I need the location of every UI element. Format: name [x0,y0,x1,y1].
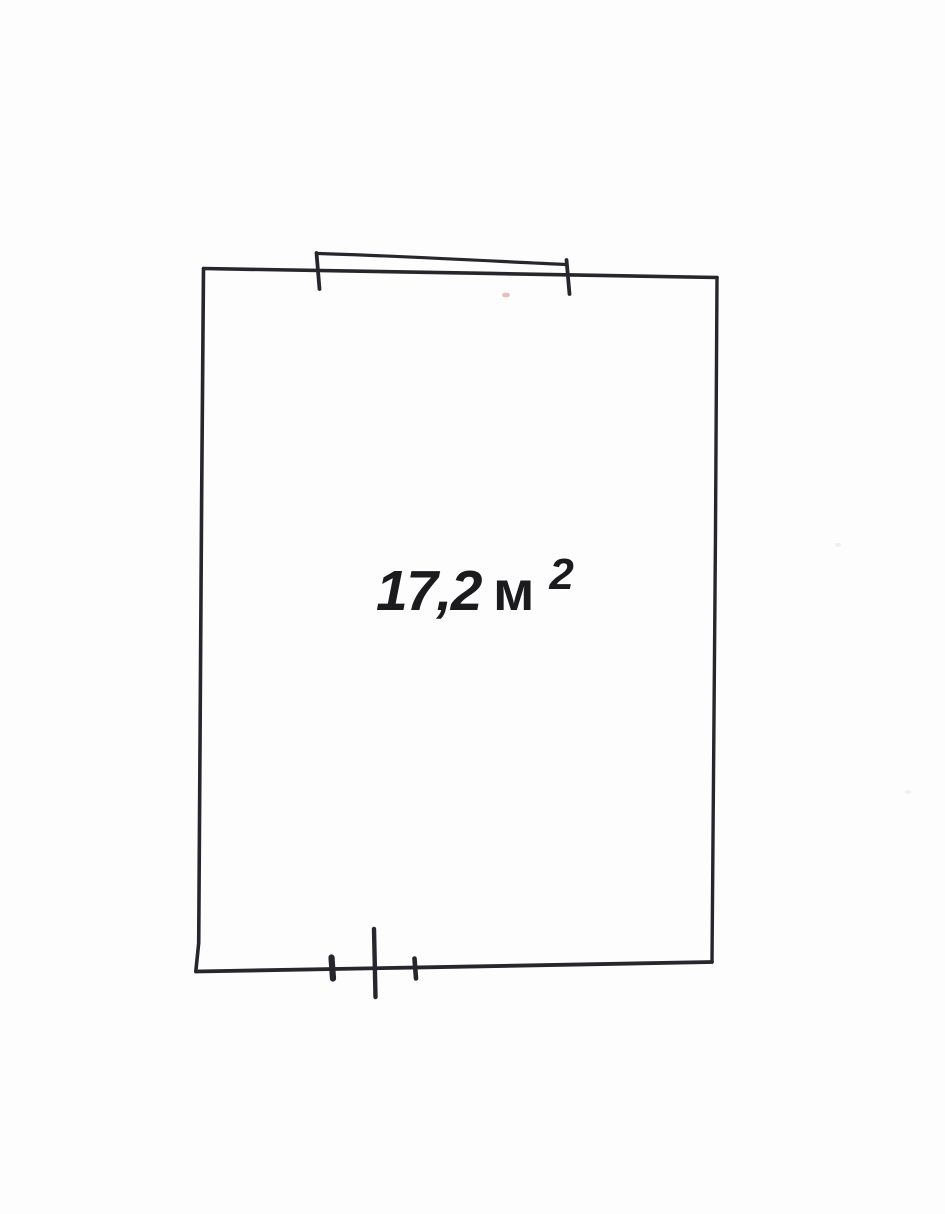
paper-speck [835,543,841,547]
wall-top [204,269,718,278]
window-tick-left [317,253,320,289]
wall-bottom [196,962,712,972]
area-unit: м [493,563,534,619]
area-value: 17,2 [376,563,481,620]
area-exponent: 2 [549,553,573,597]
paper-speck [905,790,911,794]
door-tick-right [415,959,417,979]
door-jamb-stroke [374,929,376,997]
window-sill-line [319,254,566,265]
sketch-page: 17,2 м 2 [0,0,945,1214]
door-opening-symbol [332,929,417,997]
wall-left [196,269,204,972]
wall-right [712,278,717,963]
pink-ink-speck [502,293,510,298]
window-tick-right [567,260,570,294]
room-area-label: 17,2 м 2 [376,563,574,620]
door-tick-left [332,958,334,979]
